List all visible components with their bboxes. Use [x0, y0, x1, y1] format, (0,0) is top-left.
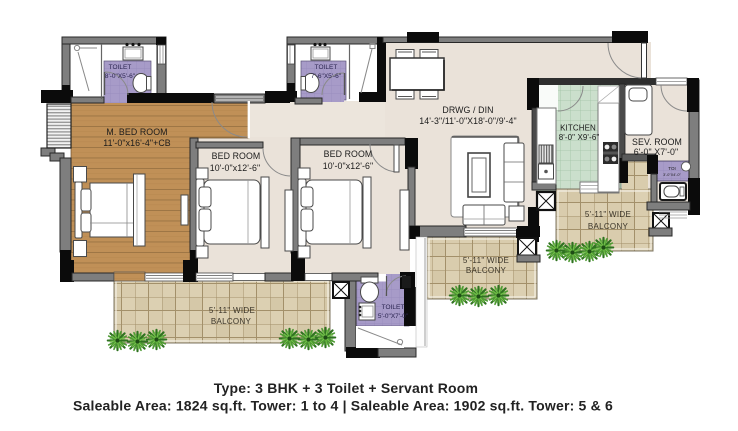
svg-text:7'-6"X5'-6": 7'-6"X5'-6": [311, 73, 342, 80]
svg-text:KITCHEN: KITCHEN: [560, 124, 596, 133]
svg-text:TOILET: TOILET: [315, 64, 338, 71]
svg-text:TOILET: TOILET: [382, 304, 405, 311]
svg-text:6'-0" X7'-0": 6'-0" X7'-0": [634, 147, 679, 157]
svg-text:3'-0"X4'-0": 3'-0"X4'-0": [663, 173, 681, 177]
svg-text:SEV. ROOM: SEV. ROOM: [632, 137, 682, 147]
svg-text:TOILET: TOILET: [109, 64, 132, 71]
svg-text:10'-0"x12'-6": 10'-0"x12'-6": [323, 161, 374, 171]
svg-text:Type: 3 BHK + 3 Toilet + Serva: Type: 3 BHK + 3 Toilet + Servant Room: [214, 380, 478, 396]
svg-text:5'-11" WIDE: 5'-11" WIDE: [585, 210, 631, 219]
svg-text:8'-0" X9'-6": 8'-0" X9'-6": [559, 133, 600, 142]
svg-text:Saleable Area: 1824 sq.ft. Tow: Saleable Area: 1824 sq.ft. Tower: 1 to 4…: [73, 398, 613, 414]
svg-text:BED ROOM: BED ROOM: [212, 151, 261, 161]
svg-text:BALCONY: BALCONY: [211, 317, 252, 326]
svg-text:10'-0"x12'-6": 10'-0"x12'-6": [210, 163, 261, 173]
svg-text:5'-11" WIDE: 5'-11" WIDE: [463, 256, 509, 265]
svg-text:8'-0"X5'-6": 8'-0"X5'-6": [105, 73, 136, 80]
svg-text:BED ROOM: BED ROOM: [324, 149, 373, 159]
svg-text:M. BED ROOM: M. BED ROOM: [106, 127, 167, 137]
svg-text:TOI: TOI: [668, 166, 675, 171]
svg-text:DRWG / DIN: DRWG / DIN: [442, 105, 493, 115]
svg-text:BALCONY: BALCONY: [588, 222, 629, 231]
svg-text:5'-11" WIDE: 5'-11" WIDE: [209, 306, 255, 315]
svg-text:14'-3"/11'-0"X18'-0"/9'-4": 14'-3"/11'-0"X18'-0"/9'-4": [419, 116, 516, 126]
svg-text:BALCONY: BALCONY: [466, 266, 507, 275]
svg-text:5'-0"X7'-0": 5'-0"X7'-0": [378, 313, 409, 320]
svg-text:11'-0"x16'-4"+CB: 11'-0"x16'-4"+CB: [103, 138, 171, 148]
